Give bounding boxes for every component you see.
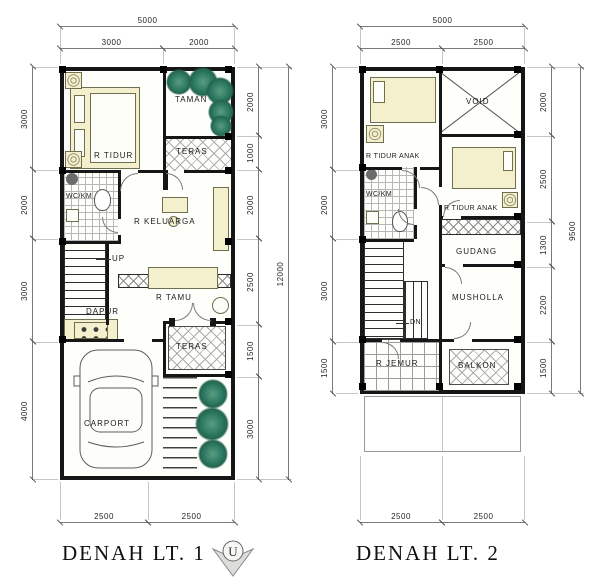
plant-icon xyxy=(195,407,229,441)
bed-pillow xyxy=(503,151,513,171)
stairs-label-up: UP xyxy=(112,254,125,263)
room-label-r-tamu: R TAMU xyxy=(156,293,192,302)
wall-segment xyxy=(184,170,231,173)
room-label-teras-atas: TERAS xyxy=(176,147,208,156)
extension-line xyxy=(336,393,358,394)
dim-bottom-1b: 2500 xyxy=(148,522,235,523)
nightstand-icon xyxy=(65,72,82,89)
door-arc xyxy=(421,187,439,205)
column-marker xyxy=(59,66,66,73)
room-label-wc-km: WC/KM xyxy=(66,193,92,200)
dim-right-2e: 1500 xyxy=(551,342,552,394)
wall-segment xyxy=(163,71,166,170)
extension-line xyxy=(336,67,358,68)
dim-right-1f: 3000 xyxy=(258,377,259,480)
extension-line xyxy=(527,222,554,223)
dim-right-2d: 2200 xyxy=(551,267,552,342)
extension-line xyxy=(442,456,443,520)
room-label-r-keluarga: R KELUARGA xyxy=(134,217,196,226)
leader-line xyxy=(396,323,409,324)
sofa-tamu xyxy=(148,267,218,289)
wall-segment xyxy=(163,136,231,139)
basin-icon xyxy=(366,169,377,180)
wall-segment xyxy=(163,321,166,377)
basin-icon xyxy=(66,173,78,185)
bed-pillow xyxy=(74,95,85,123)
plant-icon xyxy=(198,379,228,409)
stepping-path xyxy=(163,377,197,476)
dim-left-2c: 3000 xyxy=(332,239,333,342)
dim-left-2a: 3000 xyxy=(332,67,333,170)
stove-icon xyxy=(74,322,108,339)
door-arc xyxy=(454,322,471,339)
column-marker xyxy=(514,336,521,343)
wall-segment xyxy=(463,264,521,267)
sink-icon xyxy=(66,209,79,222)
dim-top-1b: 2000 xyxy=(163,48,235,49)
dim-top-1a: 3000 xyxy=(60,48,163,49)
room-label-wc-km: WC/KM xyxy=(366,191,392,198)
wall-segment xyxy=(163,374,231,377)
column-marker xyxy=(514,66,521,73)
stairs-label-dn: DN xyxy=(410,319,421,326)
wardrobe-icon xyxy=(366,125,384,143)
wall-segment xyxy=(414,167,417,209)
column-marker xyxy=(59,238,66,245)
plan1-title: DENAH LT. 1 xyxy=(62,541,206,566)
room-label-balkon: BALKON xyxy=(458,361,496,370)
dim-top-total-2: 5000 xyxy=(360,26,525,27)
dim-right-total-2: 9500 xyxy=(580,67,581,394)
column-marker xyxy=(359,383,366,390)
extension-line xyxy=(527,393,584,394)
room-label-dapur: DAPUR xyxy=(86,307,119,316)
wall-segment xyxy=(64,170,120,173)
extension-line xyxy=(524,456,525,520)
column-marker xyxy=(160,66,167,73)
wall-segment xyxy=(364,339,382,342)
extension-line xyxy=(527,342,554,343)
sink-icon xyxy=(366,211,379,224)
column-marker xyxy=(514,213,521,220)
floor-plan-1: R TIDUR TAMAN TERAS WC/KM R KELUARGA UP … xyxy=(60,67,235,480)
dim-left-2d: 1500 xyxy=(332,342,333,394)
north-compass-icon: U xyxy=(210,537,256,579)
extension-line xyxy=(336,342,358,343)
column-marker xyxy=(225,167,232,174)
extension-line xyxy=(442,50,443,64)
stairs-down xyxy=(364,239,404,339)
wall-segment xyxy=(138,170,166,173)
room-label-r-tidur-anak-1: R TIDUR ANAK xyxy=(366,153,420,160)
extension-line xyxy=(34,239,58,240)
column-marker xyxy=(514,261,521,268)
wall-segment xyxy=(461,216,521,219)
door-arc xyxy=(166,173,183,190)
extension-line xyxy=(360,456,361,520)
room-label-void: VOID xyxy=(466,97,490,106)
car-icon xyxy=(72,346,160,474)
wall-segment xyxy=(118,170,121,219)
dim-right-2b: 2500 xyxy=(551,136,552,222)
extension-line xyxy=(527,67,584,68)
dim-top-total-1: 5000 xyxy=(60,26,235,27)
wall-segment xyxy=(364,167,402,170)
column-marker xyxy=(225,318,232,325)
wall-segment xyxy=(439,134,521,137)
nightstand-icon xyxy=(65,151,82,168)
door-arc xyxy=(175,303,193,321)
plant-icon xyxy=(198,439,228,469)
column-marker xyxy=(59,167,66,174)
extension-line xyxy=(237,67,292,68)
dim-top-2b: 2500 xyxy=(442,48,525,49)
column-marker xyxy=(225,371,232,378)
extension-line xyxy=(163,50,164,64)
door-arc xyxy=(120,173,138,191)
dim-bottom-2b: 2500 xyxy=(442,522,525,523)
round-table xyxy=(212,297,229,314)
room-label-taman: TAMAN xyxy=(175,95,207,104)
dim-left-1d: 4000 xyxy=(32,342,33,480)
bed-pillow xyxy=(373,81,385,103)
dim-right-1c: 2000 xyxy=(258,170,259,239)
wall-segment xyxy=(64,241,121,244)
dim-right-1d: 2500 xyxy=(258,239,259,325)
extension-line xyxy=(237,479,292,480)
extension-line xyxy=(336,170,358,171)
room-label-r-tidur: R TIDUR xyxy=(94,151,133,160)
door-arc xyxy=(445,267,462,284)
column-marker xyxy=(359,164,366,171)
room-label-r-tidur-anak-2: R TIDUR ANAK xyxy=(444,205,498,212)
room-label-gudang: GUDANG xyxy=(456,247,497,256)
extension-line xyxy=(336,239,358,240)
dim-left-1a: 3000 xyxy=(32,67,33,170)
room-label-r-jemur: R JEMUR xyxy=(376,359,419,368)
door-arc xyxy=(402,170,420,188)
dim-top-2a: 2500 xyxy=(360,48,442,49)
wall-segment xyxy=(439,71,442,134)
column-marker xyxy=(514,383,521,390)
stairs-landing xyxy=(404,281,428,339)
column-marker xyxy=(59,336,66,343)
plan2-title: DENAH LT. 2 xyxy=(356,541,500,566)
dim-left-1c: 3000 xyxy=(32,239,33,342)
leader-line xyxy=(96,259,111,260)
desk xyxy=(162,197,188,213)
room-label-teras-bawah: TERAS xyxy=(176,342,208,351)
room-label-carport: CARPORT xyxy=(84,419,130,428)
dim-left-1b: 2000 xyxy=(32,170,33,239)
wall-segment xyxy=(439,137,442,187)
dim-right-1a: 2000 xyxy=(258,67,259,136)
wall-segment xyxy=(64,339,124,342)
column-marker xyxy=(514,131,521,138)
wall-segment xyxy=(414,225,417,239)
wall-segment xyxy=(364,239,414,242)
wall-segment xyxy=(439,219,442,339)
extension-line xyxy=(527,136,554,137)
wall-segment xyxy=(152,339,163,342)
extension-line xyxy=(34,170,58,171)
column-marker xyxy=(359,66,366,73)
dim-right-1b: 1000 xyxy=(258,136,259,170)
dim-right-2c: 1300 xyxy=(551,222,552,267)
wall-segment xyxy=(400,339,454,342)
column-marker xyxy=(225,66,232,73)
column-marker xyxy=(359,336,366,343)
extension-line xyxy=(442,397,443,451)
extension-line xyxy=(34,479,58,480)
column-marker xyxy=(436,383,443,390)
room-label-musholla: MUSHOLLA xyxy=(452,293,504,302)
extension-line xyxy=(34,342,58,343)
column-marker xyxy=(359,236,366,243)
toilet-icon xyxy=(94,189,111,211)
column-marker xyxy=(225,238,232,245)
dim-left-2b: 2000 xyxy=(332,170,333,239)
dim-right-total-1: 12000 xyxy=(288,67,289,480)
dim-bottom-1a: 2500 xyxy=(60,522,148,523)
gudang-shelf xyxy=(439,219,521,235)
wardrobe-icon xyxy=(502,192,518,208)
floor-plan-2: R TIDUR ANAK VOID WC/KM R TIDUR ANAK GUD… xyxy=(360,67,525,394)
compass-north-label: U xyxy=(228,544,238,559)
column-marker xyxy=(225,133,232,140)
column-marker xyxy=(436,66,443,73)
dim-right-1e: 1500 xyxy=(258,325,259,377)
door-arc xyxy=(193,303,211,321)
extension-line xyxy=(34,67,58,68)
dim-bottom-2a: 2500 xyxy=(360,522,442,523)
dim-right-2a: 2000 xyxy=(551,67,552,136)
extension-line xyxy=(527,267,554,268)
